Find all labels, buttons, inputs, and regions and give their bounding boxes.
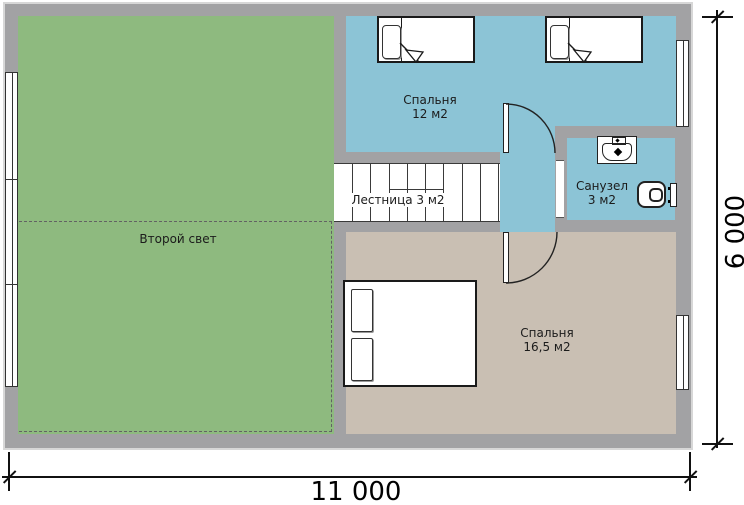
window-glass-line xyxy=(683,41,684,126)
dimension-extension xyxy=(689,452,691,491)
room-area: 3 м2 xyxy=(552,193,652,207)
pillow xyxy=(382,25,401,59)
dimension-line-height xyxy=(716,10,718,448)
label-stairs: Лестница 3 м2 xyxy=(345,193,451,207)
toilet-tank xyxy=(670,183,677,207)
single-bed-icon xyxy=(545,16,643,63)
room-area: 16,5 м2 xyxy=(487,340,607,354)
window-glass-line xyxy=(12,73,13,386)
dimension-label-height: 6 000 xyxy=(721,132,744,332)
room-name: Второй свет xyxy=(108,232,248,246)
room-area: 12 м2 xyxy=(370,107,490,121)
pillow xyxy=(550,25,569,59)
stair-tread xyxy=(498,164,499,221)
window-divider xyxy=(6,284,17,285)
stair-tread xyxy=(480,164,481,221)
window-divider xyxy=(6,179,17,180)
pillow xyxy=(351,338,373,381)
room-name: Санузел xyxy=(552,179,652,193)
dimension-label-width: 11 000 xyxy=(256,477,456,505)
window-glass-line xyxy=(683,316,684,389)
label-bathroom: Санузел 3 м2 xyxy=(552,179,652,207)
window-left xyxy=(5,72,18,387)
door-leaf-bedroom-small xyxy=(503,103,509,153)
bed-blanket-line xyxy=(569,18,570,61)
bed-blanket-line xyxy=(401,18,402,61)
corridor xyxy=(500,152,555,232)
dimension-extension xyxy=(8,452,10,491)
single-bed-icon xyxy=(377,16,475,63)
pillow xyxy=(351,289,373,332)
room-name: Лестница 3 м2 xyxy=(349,193,446,207)
floor-plan: Второй свет Спальня 12 м2 Лестница 3 м2 … xyxy=(0,0,744,505)
void-dashed-outline xyxy=(19,221,332,432)
room-name: Спальня xyxy=(370,93,490,107)
double-bed-icon xyxy=(343,280,477,387)
door-leaf-bedroom-large xyxy=(503,232,509,283)
window-right-bottom xyxy=(676,315,689,390)
label-bedroom-large: Спальня 16,5 м2 xyxy=(487,326,607,354)
stair-rail xyxy=(389,189,443,190)
window-right-top xyxy=(676,40,689,127)
label-bedroom-small: Спальня 12 м2 xyxy=(370,93,490,121)
sink-icon xyxy=(597,136,637,164)
room-bedroom-small-lower xyxy=(346,126,555,152)
room-name: Спальня xyxy=(487,326,607,340)
label-second-light: Второй свет xyxy=(108,232,248,246)
stair-tread xyxy=(462,164,463,221)
